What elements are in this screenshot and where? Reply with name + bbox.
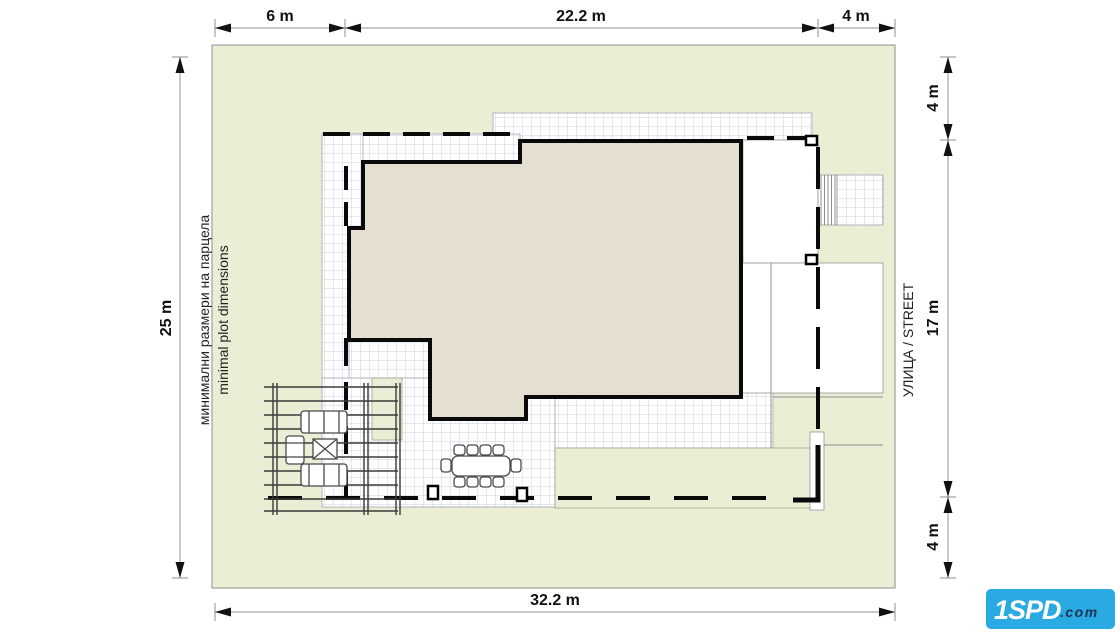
logo-text: 1SPD [994,595,1061,625]
top-paving-strip [493,113,812,140]
dimension-top: 6 m 22.2 m 4 m [215,8,895,37]
street-label: УЛИЦА / STREET [900,282,916,397]
sofa [301,411,347,433]
dim-top-right: 4 m [842,8,870,25]
dimension-left: 25 m [158,57,188,578]
plot-note-english: minimal plot dimensions [215,245,231,394]
terrace-post [428,486,438,499]
entry-platform [837,175,883,225]
terrace-post [517,488,527,501]
dimension-right: 4 m 17 m 4 m [925,57,956,578]
logo-suffix: .com [1060,604,1099,620]
dining-table [452,456,510,476]
dim-top-middle: 22.2 m [556,8,606,25]
armchair [286,436,304,464]
carport-column [806,255,817,264]
driveway-court [741,263,883,393]
porch-notch [349,338,430,380]
dim-right-bottom: 4 m [925,523,942,551]
dimension-bottom: 32.2 m [215,592,895,621]
coffee-table [313,439,337,459]
plot-note-bulgarian: минимални размери на парцела [196,215,212,426]
sofa [301,464,347,486]
carport-column [806,136,817,145]
carport-area [743,140,818,263]
dim-top-left: 6 m [266,8,294,25]
dim-left: 25 m [158,300,175,336]
brand-logo[interactable]: 1SPD .com [986,589,1115,629]
dim-right-top: 4 m [925,84,942,112]
dim-bottom: 32.2 m [530,592,580,609]
dim-right-middle: 17 m [925,300,942,336]
site-plan-page: 6 m 22.2 m 4 m 25 m 32.2 m 4 m 17 m 4 m … [0,0,1120,632]
site-plan-drawing: 6 m 22.2 m 4 m 25 m 32.2 m 4 m 17 m 4 m … [0,0,1120,632]
